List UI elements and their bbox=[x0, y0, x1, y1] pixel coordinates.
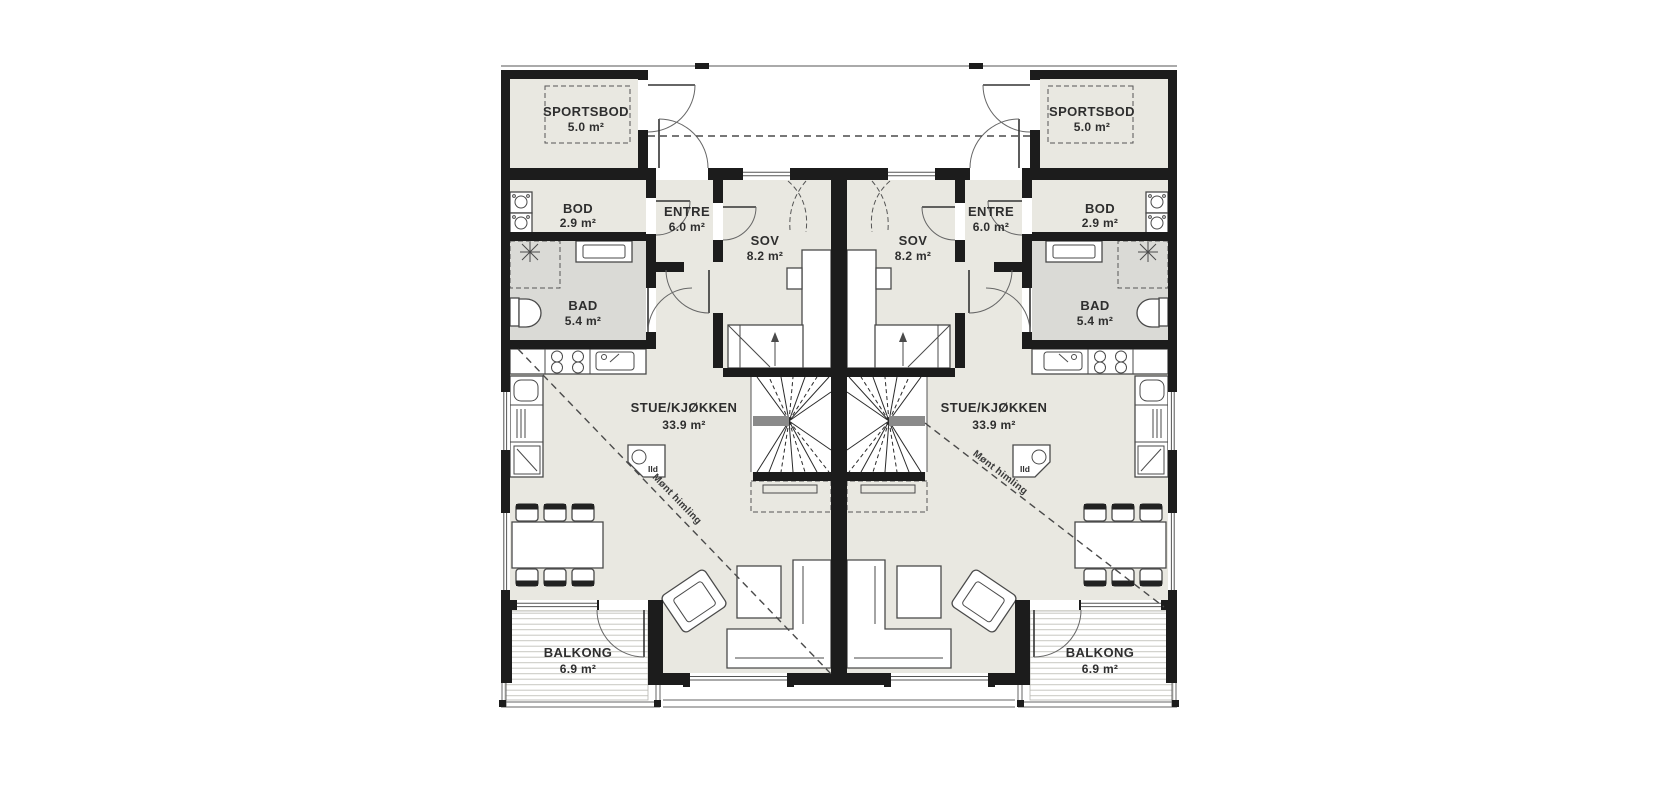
room-label-bad-right: BAD bbox=[1080, 298, 1109, 313]
room-area-balkong-left: 6.9 m² bbox=[560, 662, 596, 676]
room-area-sov-right: 8.2 m² bbox=[895, 249, 931, 263]
room-label-sportsbod-right: SPORTSBOD bbox=[1049, 104, 1135, 119]
room-area-bod-right: 2.9 m² bbox=[1082, 216, 1118, 230]
room-label-bad-left: BAD bbox=[568, 298, 597, 313]
floor-plan-canvas: SPORTSBOD 5.0 m² BOD 2.9 m² ENTRE 6.0 m²… bbox=[0, 0, 1670, 800]
room-label-sportsbod-left: SPORTSBOD bbox=[543, 104, 629, 119]
room-area-sportsbod-left: 5.0 m² bbox=[568, 120, 604, 134]
room-label-balkong-right: BALKONG bbox=[1066, 645, 1135, 660]
room-area-stue-left: 33.9 m² bbox=[662, 418, 705, 432]
room-area-entre-right: 6.0 m² bbox=[973, 220, 1009, 234]
room-area-balkong-right: 6.9 m² bbox=[1082, 662, 1118, 676]
room-label-balkong-left: BALKONG bbox=[544, 645, 613, 660]
room-area-sov-left: 8.2 m² bbox=[747, 249, 783, 263]
room-label-sov-right: SOV bbox=[899, 233, 928, 248]
room-label-entre-right: ENTRE bbox=[968, 204, 1014, 219]
room-label-sov-left: SOV bbox=[751, 233, 780, 248]
room-label-bod-left: BOD bbox=[563, 201, 593, 216]
room-label-stue-right: STUE/KJØKKEN bbox=[941, 400, 1048, 415]
fireplace-label-right: Ild bbox=[1020, 464, 1030, 474]
room-area-entre-left: 6.0 m² bbox=[669, 220, 705, 234]
room-area-stue-right: 33.9 m² bbox=[972, 418, 1015, 432]
room-area-bod-left: 2.9 m² bbox=[560, 216, 596, 230]
room-label-stue-left: STUE/KJØKKEN bbox=[631, 400, 738, 415]
room-label-entre-left: ENTRE bbox=[664, 204, 710, 219]
room-label-bod-right: BOD bbox=[1085, 201, 1115, 216]
room-area-bad-right: 5.4 m² bbox=[1077, 314, 1113, 328]
room-area-sportsbod-right: 5.0 m² bbox=[1074, 120, 1110, 134]
room-area-bad-left: 5.4 m² bbox=[565, 314, 601, 328]
